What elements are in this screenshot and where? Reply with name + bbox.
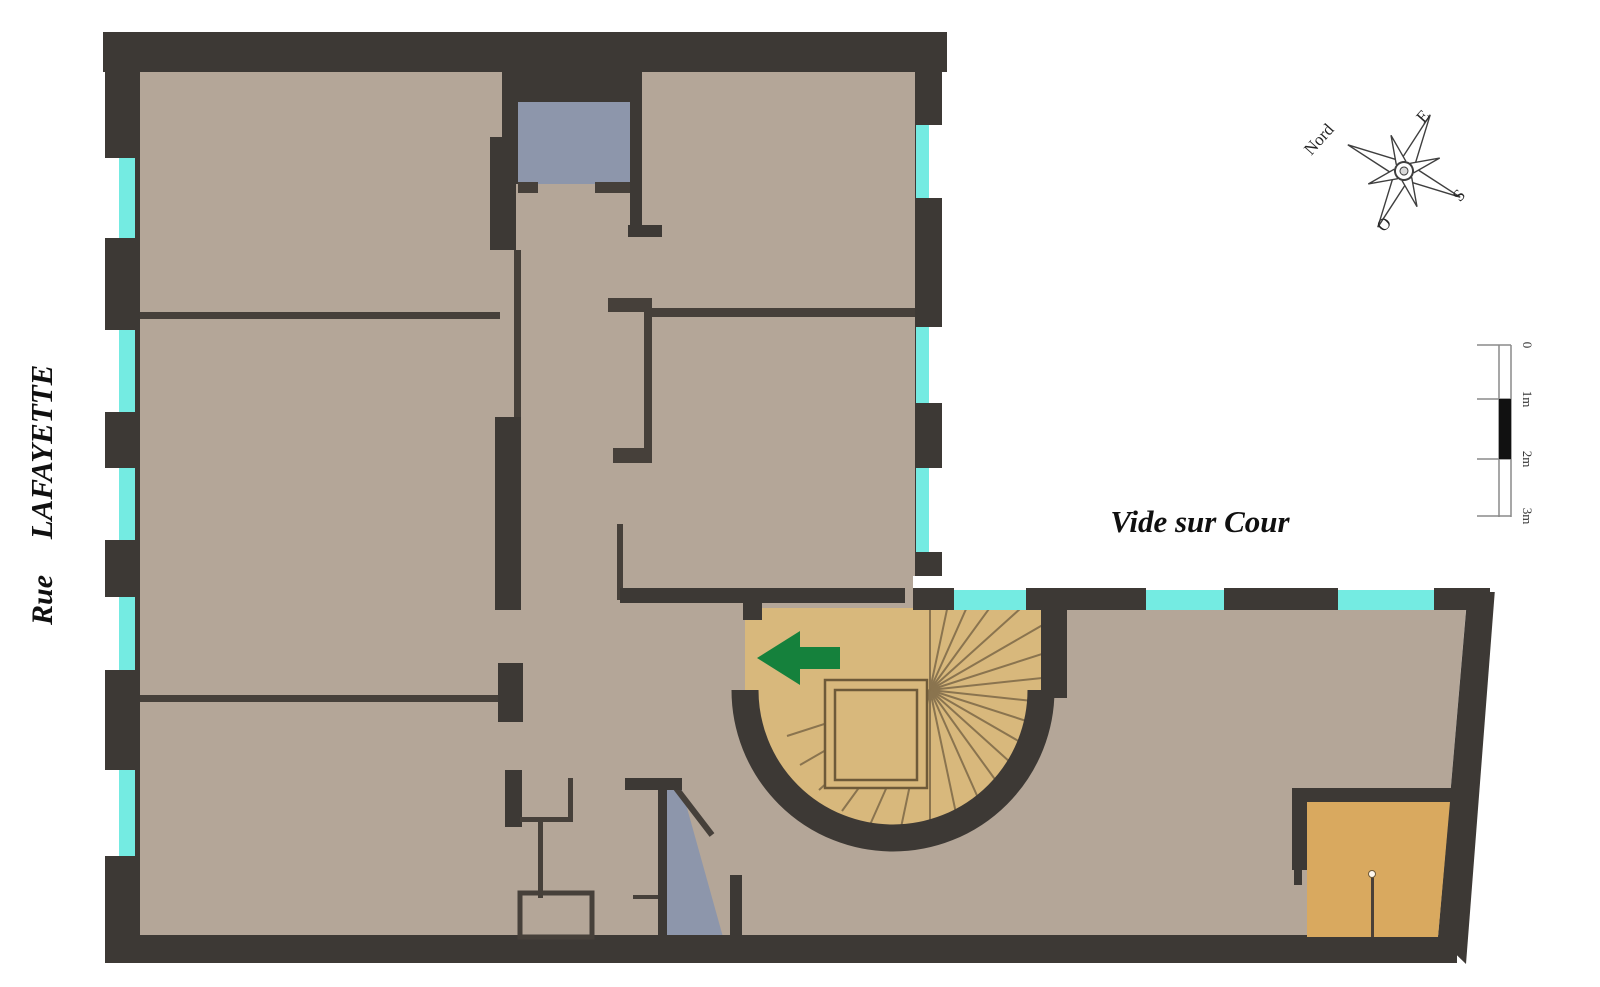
compass-north-label: Nord: [1300, 120, 1338, 159]
north-wall-thick-part: [502, 72, 642, 102]
alcove-floor: [1307, 802, 1450, 937]
east-windows: [916, 125, 942, 552]
scale-tick-0: 0: [1520, 342, 1535, 349]
scale-tick-2m: 2m: [1520, 451, 1535, 468]
north-wall: [103, 32, 947, 72]
compass-east-label: E: [1412, 106, 1433, 126]
stair-right-wall: [1041, 600, 1067, 698]
compass-south-label: S: [1449, 185, 1469, 205]
scale-tick-3m: 3m: [1520, 508, 1535, 525]
right-wing-window-wall: [913, 576, 1496, 610]
courtyard-label: Vide sur Cour: [1110, 504, 1290, 539]
stair-core-outer: [825, 680, 927, 788]
scale-bar: 0 1m 2m 3m: [1477, 342, 1535, 525]
floor-plan: Nord E S O 0 1m 2m 3m Rue LAFAYETTE Vide…: [0, 0, 1600, 987]
floor-plan-page: Nord E S O 0 1m 2m 3m Rue LAFAYETTE Vide…: [0, 0, 1600, 987]
compass-west-label: O: [1373, 213, 1395, 235]
south-wall: [105, 935, 1457, 963]
scale-bar-filled-segment: [1499, 399, 1511, 459]
scale-tick-1m: 1m: [1520, 391, 1535, 408]
street-label-rue: Rue: [26, 575, 59, 626]
compass-rose-icon: Nord E S O: [1300, 89, 1486, 254]
street-label-lafayette: LAFAYETTE: [24, 365, 59, 541]
closet-room: [518, 100, 632, 184]
